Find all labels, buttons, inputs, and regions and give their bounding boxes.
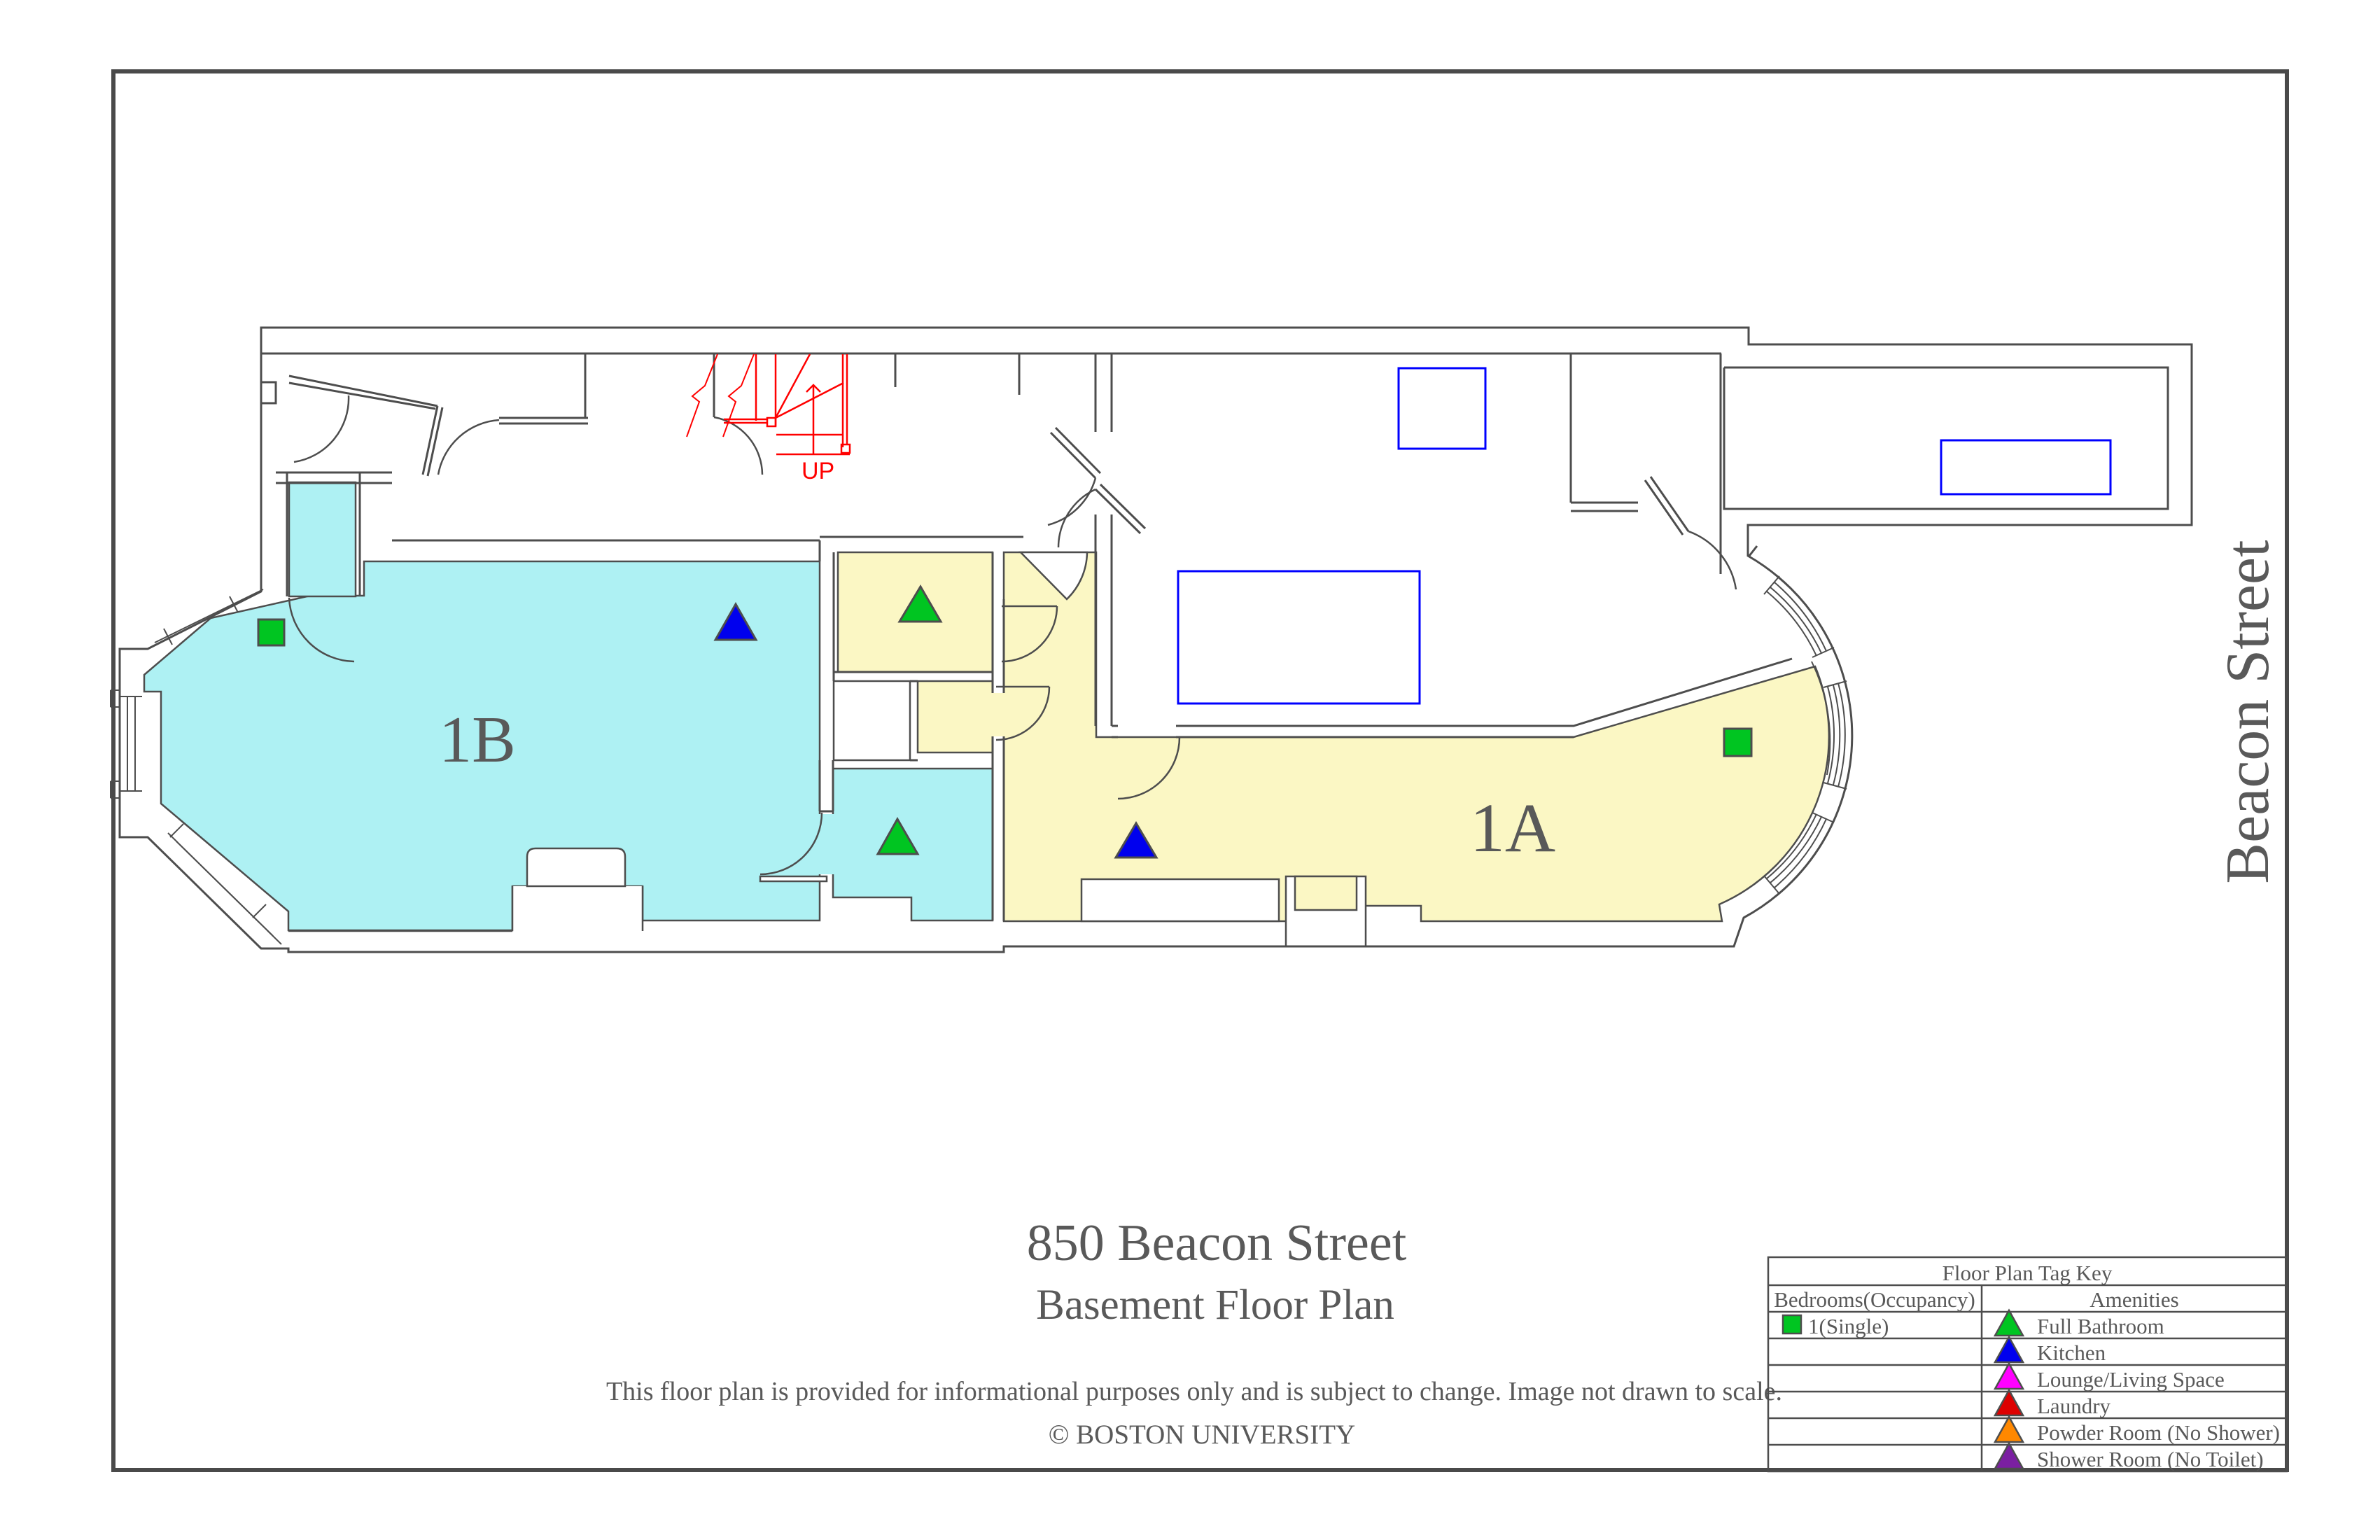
svg-text:Basement Floor Plan: Basement Floor Plan (1036, 1282, 1394, 1329)
svg-text:Powder Room (No Shower): Powder Room (No Shower) (2037, 1420, 2280, 1445)
svg-text:Kitchen: Kitchen (2037, 1340, 2106, 1365)
svg-text:Bedrooms(Occupancy): Bedrooms(Occupancy) (1774, 1287, 1975, 1312)
svg-text:Lounge/Living Space: Lounge/Living Space (2037, 1367, 2225, 1392)
svg-text:UP: UP (801, 458, 834, 484)
svg-text:This floor plan is provided fo: This floor plan is provided for informat… (606, 1377, 1782, 1406)
svg-text:Full Bathroom: Full Bathroom (2037, 1314, 2164, 1338)
svg-text:Laundry: Laundry (2037, 1394, 2111, 1418)
svg-text:1A: 1A (1470, 789, 1555, 867)
svg-text:1B: 1B (439, 703, 516, 776)
svg-text:1(Single): 1(Single) (1808, 1314, 1889, 1338)
svg-text:Amenities: Amenities (2089, 1287, 2178, 1312)
svg-text:Beacon Street: Beacon Street (2214, 540, 2282, 883)
svg-text:Floor Plan Tag Key: Floor Plan Tag Key (1942, 1261, 2113, 1285)
svg-text:© BOSTON UNIVERSITY: © BOSTON UNIVERSITY (1049, 1420, 1355, 1450)
svg-text:Shower Room (No Toilet): Shower Room (No Toilet) (2037, 1447, 2264, 1471)
svg-text:850 Beacon Street: 850 Beacon Street (1027, 1214, 1407, 1272)
